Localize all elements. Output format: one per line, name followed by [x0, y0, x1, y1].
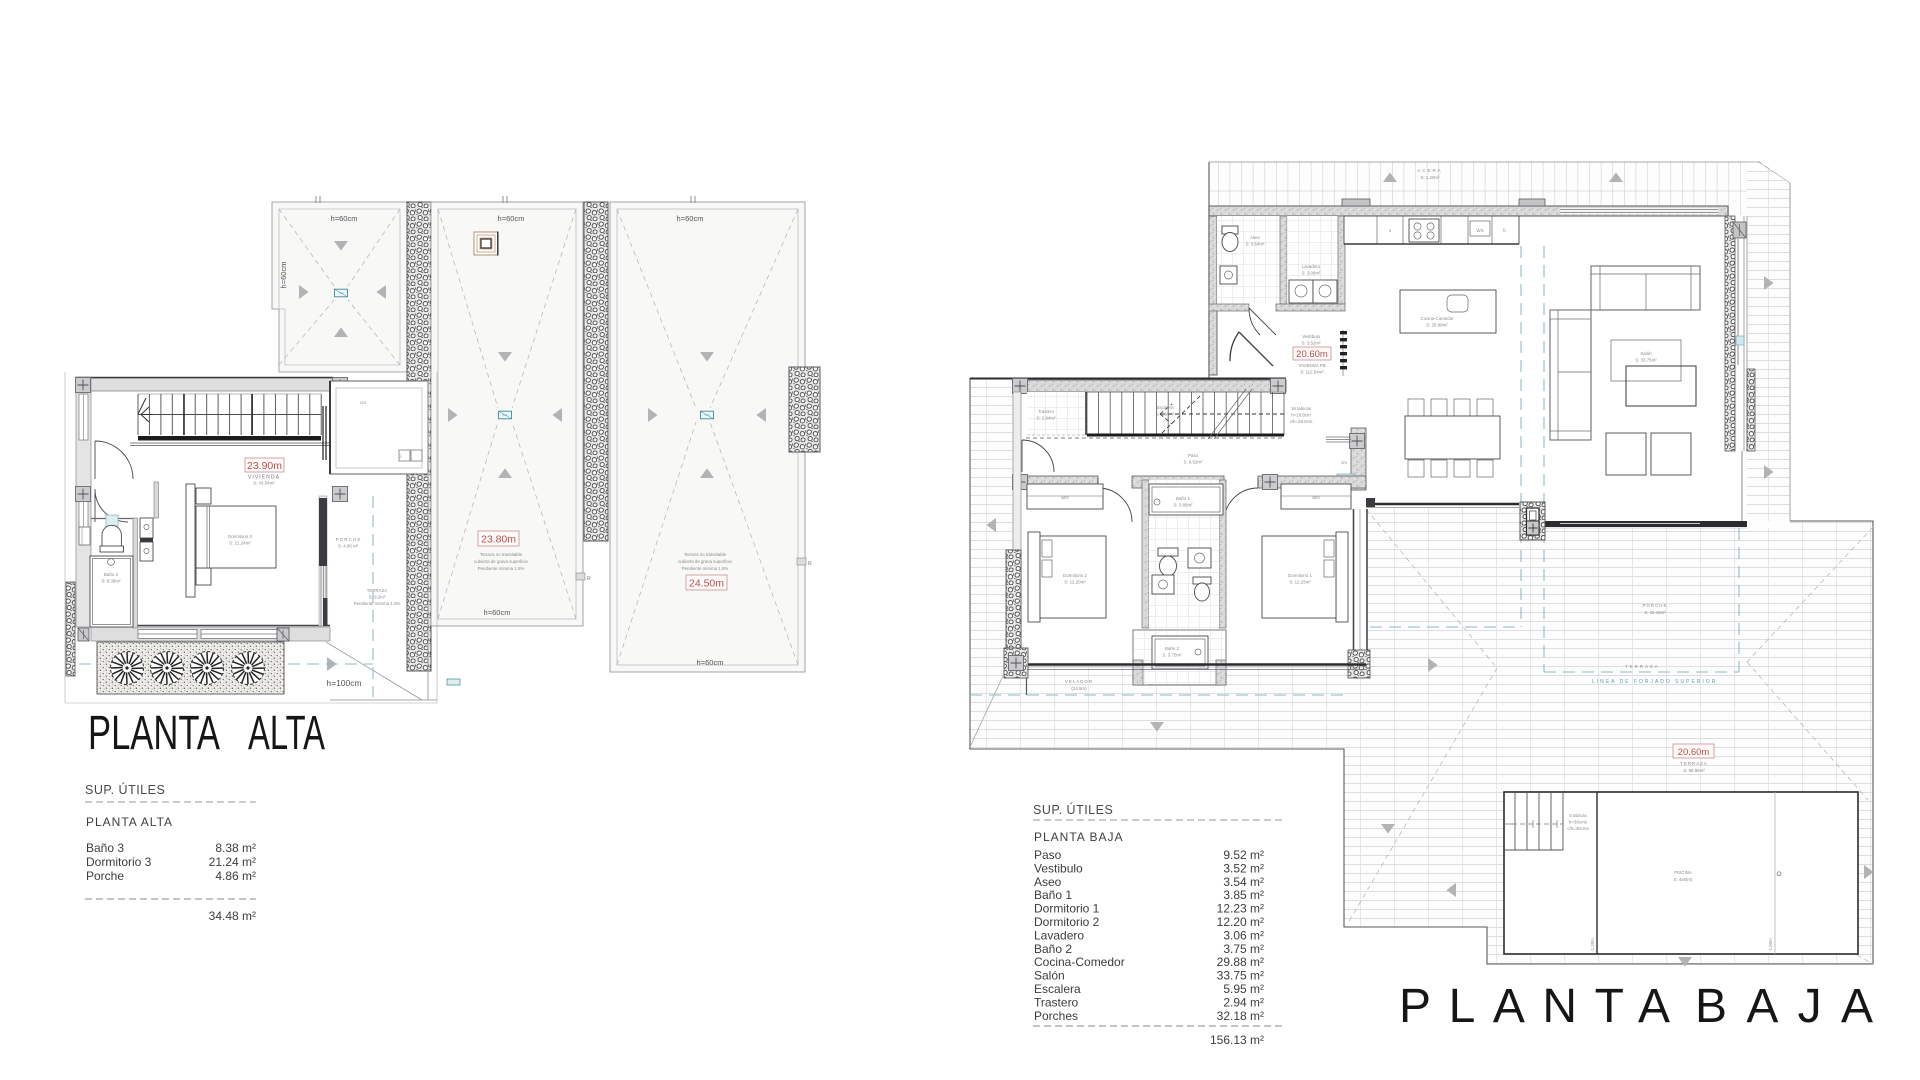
svg-text:ACERA: ACERA — [1417, 168, 1442, 173]
svg-text:20.60m: 20.60m — [1678, 747, 1710, 758]
svg-text:Baño 1: Baño 1 — [1176, 496, 1190, 501]
svg-text:Dormitorio 2: Dormitorio 2 — [1034, 915, 1100, 929]
svg-text:Porches: Porches — [1034, 1009, 1078, 1023]
svg-text:cm: cm — [1341, 460, 1347, 465]
svg-text:S: 12.23m²: S: 12.23m² — [1289, 580, 1311, 585]
svg-text:3.54 m²: 3.54 m² — [1223, 875, 1264, 889]
svg-text:R: R — [587, 576, 591, 582]
svg-text:3.85 m²: 3.85 m² — [1223, 888, 1264, 902]
svg-text:arm: arm — [1061, 495, 1069, 500]
svg-text:2.94 m²: 2.94 m² — [1223, 995, 1264, 1009]
svg-text:TERRAZA: TERRAZA — [367, 588, 388, 593]
svg-text:PORCHE: PORCHE — [1643, 603, 1668, 608]
svg-text:ALTA: ALTA — [248, 707, 325, 760]
svg-text:PLANTA: PLANTA — [88, 707, 220, 760]
svg-text:Vestibulo: Vestibulo — [1034, 861, 1083, 875]
svg-text:PLANTA ALTA: PLANTA ALTA — [86, 815, 173, 829]
svg-text:Paso: Paso — [1188, 453, 1199, 458]
svg-text:Lavadero: Lavadero — [1034, 928, 1084, 942]
svg-text:Dormitorio 3: Dormitorio 3 — [228, 534, 252, 539]
svg-text:c/h=30cms: c/h=30cms — [1567, 826, 1589, 831]
svg-text:-1.20m: -1.20m — [1590, 938, 1595, 952]
svg-text:3.06 m²: 3.06 m² — [1223, 928, 1264, 942]
svg-text:S: 3.06m²: S: 3.06m² — [1301, 271, 1321, 276]
svg-text:G: G — [398, 454, 402, 459]
svg-text:21.24 m²: 21.24 m² — [209, 855, 256, 869]
svg-text:Dormitorio 3: Dormitorio 3 — [86, 855, 152, 869]
svg-text:9.52 m²: 9.52 m² — [1223, 848, 1264, 862]
svg-text:h=100cm: h=100cm — [326, 678, 361, 688]
svg-text:S: 3.52m²: S: 3.52m² — [1301, 341, 1321, 346]
svg-text:Vestíbulo: Vestíbulo — [1302, 334, 1321, 339]
svg-text:S: 4x8(m): S: 4x8(m) — [1673, 877, 1693, 882]
svg-text:S: 4.86 m²: S: 4.86 m² — [338, 544, 359, 549]
svg-text:S: 32.18m²: S: 32.18m² — [1644, 610, 1666, 615]
svg-text:cubierta de grava superficie: cubierta de grava superficie — [678, 559, 732, 564]
svg-text:Dormitorio 1: Dormitorio 1 — [1034, 902, 1100, 916]
svg-text:5 tabicas: 5 tabicas — [1569, 813, 1587, 818]
svg-text:R: R — [808, 561, 812, 567]
svg-text:23.90m: 23.90m — [247, 460, 282, 472]
svg-text:S: 1.20m²: S: 1.20m² — [1420, 175, 1440, 180]
svg-text:cubierta de grava superficie: cubierta de grava superficie — [474, 559, 528, 564]
svg-text:4.86 m²: 4.86 m² — [215, 869, 256, 883]
svg-text:S: 3.75m²: S: 3.75m² — [1162, 653, 1182, 658]
svg-text:S: 9.2m²: S: 9.2m² — [369, 595, 386, 600]
svg-text:VIVIENDA PB: VIVIENDA PB — [1298, 363, 1325, 368]
svg-text:Cocina-Comedor: Cocina-Comedor — [1034, 955, 1125, 969]
svg-text:23.80m: 23.80m — [481, 534, 516, 546]
svg-text:O: O — [1776, 871, 1781, 878]
svg-text:Baño 3: Baño 3 — [104, 572, 118, 577]
svg-text:Baño 2: Baño 2 — [1034, 942, 1072, 956]
svg-text:24.50m: 24.50m — [689, 578, 724, 590]
svg-text:cm: cm — [360, 400, 366, 405]
svg-text:Pendiente mínima 1.0%: Pendiente mínima 1.0% — [354, 601, 401, 606]
svg-text:Terraza no transitable: Terraza no transitable — [684, 552, 727, 557]
svg-text:fr.: fr. — [1503, 228, 1507, 233]
svg-text:Salón: Salón — [1034, 969, 1065, 983]
svg-text:Pendiente mínima 1.5%: Pendiente mínima 1.5% — [478, 566, 525, 571]
svg-text:S: 3.54m²: S: 3.54m² — [1245, 242, 1265, 247]
svg-text:h=18.8cm: h=18.8cm — [1291, 413, 1311, 418]
svg-text:TERRAZA: TERRAZA — [1680, 761, 1708, 766]
svg-text:Lavadero: Lavadero — [1302, 264, 1321, 269]
svg-text:h=60cm: h=60cm — [677, 214, 704, 223]
svg-text:S: 112.54m²: S: 112.54m² — [1300, 370, 1324, 375]
svg-text:SUP. ÚTILES: SUP. ÚTILES — [85, 782, 165, 797]
svg-text:Terraza no transitable: Terraza no transitable — [480, 552, 523, 557]
svg-text:12.23 m²: 12.23 m² — [1217, 902, 1264, 916]
svg-text:S: 98.89m²: S: 98.89m² — [1683, 768, 1705, 773]
svg-text:Trastero: Trastero — [1034, 995, 1079, 1009]
svg-text:3.75 m²: 3.75 m² — [1223, 942, 1264, 956]
svg-text:SUP. ÚTILES: SUP. ÚTILES — [1033, 802, 1113, 817]
svg-text:Pendiente mínima 1.5%: Pendiente mínima 1.5% — [682, 566, 729, 571]
svg-text:h=60cm: h=60cm — [484, 608, 511, 617]
svg-text:S: 12.20m²: S: 12.20m² — [1064, 580, 1086, 585]
svg-text:12.20 m²: 12.20 m² — [1217, 915, 1264, 929]
svg-text:Paso: Paso — [1034, 848, 1062, 862]
svg-text:Salón: Salón — [1640, 351, 1652, 356]
svg-text:Cocina-Comedor: Cocina-Comedor — [1420, 316, 1454, 321]
svg-text:Baño 1: Baño 1 — [1034, 888, 1072, 902]
svg-text:h=60cm: h=60cm — [279, 262, 288, 289]
svg-text:20.60m: 20.60m — [1296, 349, 1328, 360]
svg-text:Aseo: Aseo — [1034, 875, 1062, 889]
svg-text:PISCINA: PISCINA — [1674, 870, 1692, 875]
svg-text:Trastero: Trastero — [1038, 409, 1055, 414]
svg-text:TERRAZA: TERRAZA — [1625, 664, 1660, 669]
svg-text:Aseo: Aseo — [1250, 235, 1261, 240]
svg-text:Baño 3: Baño 3 — [86, 841, 124, 855]
svg-text:(24.5m): (24.5m) — [1071, 686, 1087, 691]
svg-text:c/h=28.0cm: c/h=28.0cm — [1290, 419, 1313, 424]
svg-text:h=60cm: h=60cm — [331, 214, 358, 223]
svg-text:Baño 2: Baño 2 — [1165, 646, 1179, 651]
svg-text:arm: arm — [1312, 495, 1320, 500]
svg-text:P O R C H E: P O R C H E — [336, 537, 361, 542]
svg-text:Escalera: Escalera — [1034, 982, 1081, 996]
svg-text:WS: WS — [1476, 228, 1483, 233]
svg-text:LINEA DE FORJADO SUPERIOR: LINEA DE FORJADO SUPERIOR — [1592, 679, 1717, 685]
svg-text:S: 5.95m²: S: 5.95m² — [1155, 412, 1175, 417]
svg-text:S: 2.94m²: S: 2.94m² — [1036, 416, 1056, 421]
svg-text:S: 21.24m²: S: 21.24m² — [229, 541, 251, 546]
svg-text:34.48 m²: 34.48 m² — [209, 909, 256, 923]
svg-text:S: 3.85m²: S: 3.85m² — [1173, 503, 1193, 508]
svg-text:8.38 m²: 8.38 m² — [215, 841, 256, 855]
svg-text:S: 8.38m²: S: 8.38m² — [101, 579, 121, 584]
svg-text:PLANTA BAJA: PLANTA BAJA — [1034, 830, 1123, 844]
svg-text:156.13 m²: 156.13 m² — [1210, 1033, 1264, 1047]
svg-text:S: 29.88m²: S: 29.88m² — [1426, 323, 1448, 328]
svg-text:Escalera: Escalera — [1156, 405, 1174, 410]
svg-text:29.88 m²: 29.88 m² — [1217, 955, 1264, 969]
svg-text:33.75 m²: 33.75 m² — [1217, 969, 1264, 983]
svg-text:Dormitorio 1: Dormitorio 1 — [1288, 573, 1312, 578]
svg-text:VELADOR: VELADOR — [1065, 679, 1093, 684]
svg-text:h=30cms: h=30cms — [1569, 820, 1588, 825]
svg-text:h=60cm: h=60cm — [697, 658, 724, 667]
svg-text:16 tabicas: 16 tabicas — [1291, 406, 1312, 411]
svg-text:32.18 m²: 32.18 m² — [1217, 1009, 1264, 1023]
svg-text:-1.80m: -1.80m — [1768, 938, 1773, 952]
svg-text:S: 43.54m²: S: 43.54m² — [253, 481, 275, 486]
svg-text:Porche: Porche — [86, 869, 124, 883]
svg-text:Dormitorio 2: Dormitorio 2 — [1063, 573, 1087, 578]
svg-text:3.52 m²: 3.52 m² — [1223, 861, 1264, 875]
svg-text:S: 33.75m²: S: 33.75m² — [1635, 358, 1657, 363]
svg-text:5.95 m²: 5.95 m² — [1223, 982, 1264, 996]
svg-text:h=60cm: h=60cm — [498, 214, 525, 223]
svg-text:S: 9.52m²: S: 9.52m² — [1183, 460, 1203, 465]
